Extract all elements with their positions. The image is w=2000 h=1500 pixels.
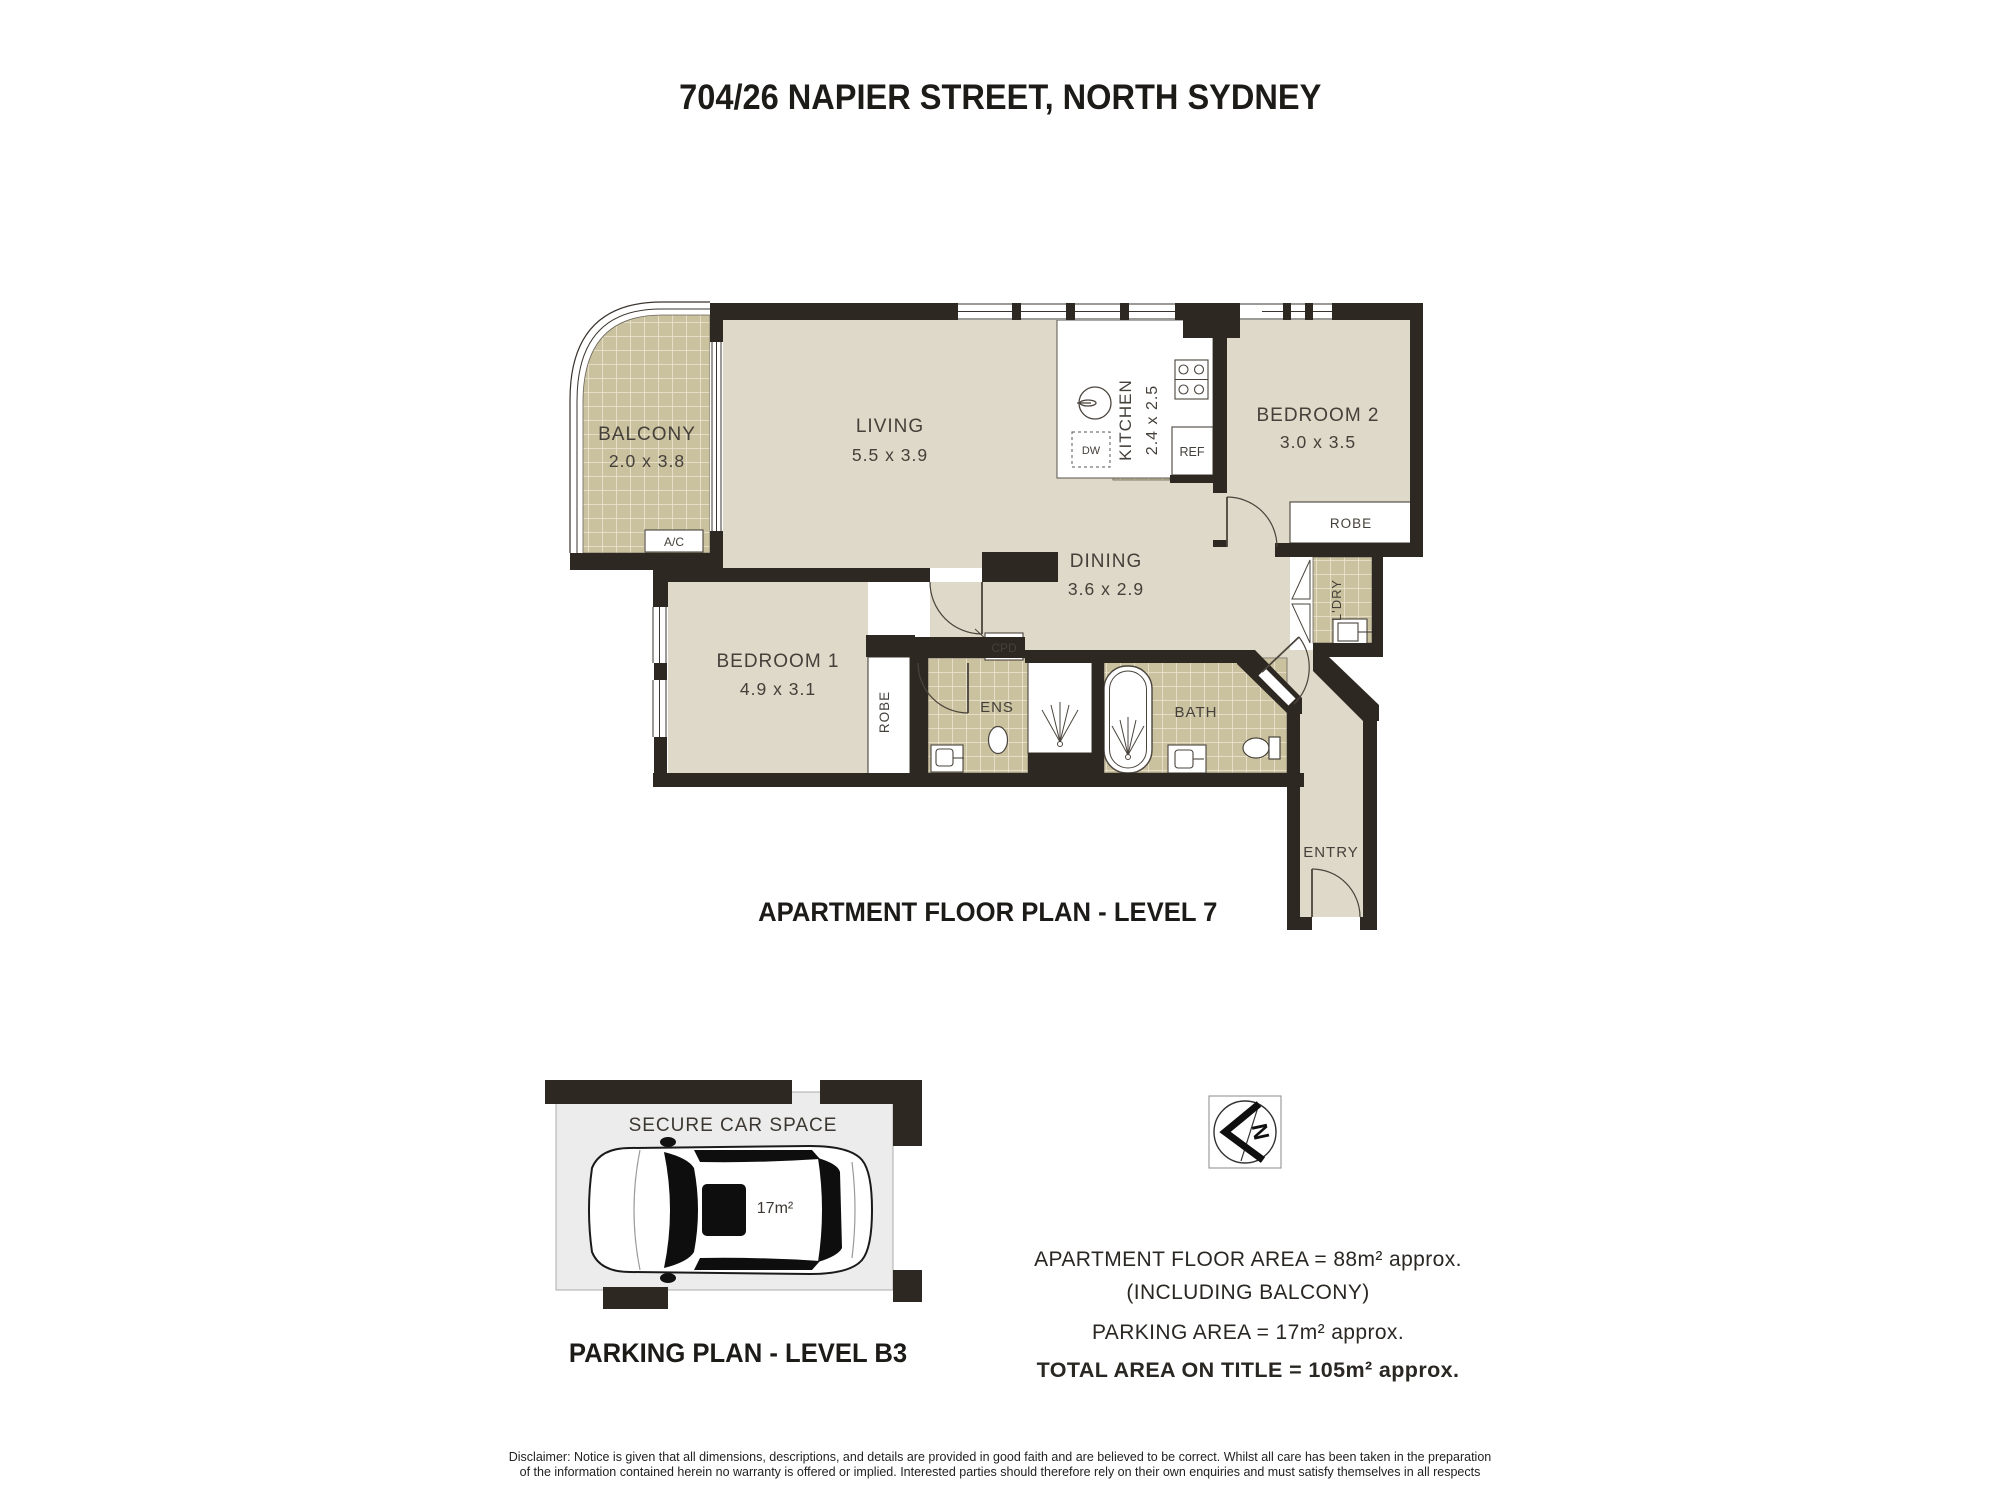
flyer-page: 704/26 NAPIER STREET, NORTH SYDNEY: [0, 0, 2000, 1500]
apartment-area-note: (INCLUDING BALCONY): [1028, 1281, 1468, 1305]
parking-plan: SECURE CAR SPACE 17m²: [520, 1060, 950, 1330]
bath-toilet: [1243, 737, 1280, 759]
area-summary: APARTMENT FLOOR AREA = 88m² approx. (INC…: [1028, 1248, 1468, 1392]
bedroom2-dims: 3.0 x 3.5: [1280, 432, 1356, 452]
balcony-slider: [710, 342, 723, 531]
north-compass-icon: N: [1205, 1092, 1289, 1176]
bedroom1-dims: 4.9 x 3.1: [740, 679, 816, 699]
cupboard-label: CPD: [991, 641, 1017, 655]
bath-vanity: [1168, 745, 1206, 773]
dining-dims: 3.6 x 2.9: [1068, 579, 1144, 599]
total-area-line: TOTAL AREA ON TITLE = 105m² approx.: [1028, 1358, 1468, 1383]
balcony-label: BALCONY: [598, 424, 696, 445]
kitchen-label: KITCHEN: [1116, 379, 1135, 461]
disclaimer: Disclaimer: Notice is given that all dim…: [300, 1450, 1700, 1480]
bathtub-icon: [1104, 666, 1152, 773]
floor-plan-caption: APARTMENT FLOOR PLAN - LEVEL 7: [588, 897, 1388, 928]
stove-icon: [1175, 360, 1208, 399]
laundry-label: L'DRY: [1329, 579, 1344, 621]
balcony-dims: 2.0 x 3.8: [609, 451, 685, 471]
living-dims: 5.5 x 3.9: [852, 445, 928, 465]
disclaimer-line2: of the information contained herein no w…: [300, 1465, 1700, 1480]
robe2-label: ROBE: [1330, 516, 1372, 531]
living-label: LIVING: [856, 416, 924, 437]
car-space-area-label: 17m²: [757, 1200, 794, 1217]
parking-plan-caption: PARKING PLAN - LEVEL B3: [538, 1338, 938, 1369]
ac-label: A/C: [664, 535, 684, 549]
secure-car-space-label: SECURE CAR SPACE: [629, 1115, 838, 1136]
bedroom1-label: BEDROOM 1: [716, 651, 839, 672]
apartment-area-line: APARTMENT FLOOR AREA = 88m² approx.: [1028, 1248, 1468, 1272]
disclaimer-line1: Disclaimer: Notice is given that all dim…: [300, 1450, 1700, 1465]
refrigerator-label: REF: [1180, 445, 1205, 459]
bedroom2-label: BEDROOM 2: [1256, 405, 1379, 426]
ens-label: ENS: [980, 699, 1014, 716]
page-title: 704/26 NAPIER STREET, NORTH SYDNEY: [0, 78, 2000, 118]
parking-area-line: PARKING AREA = 17m² approx.: [1028, 1321, 1468, 1345]
ens-toilet: [989, 727, 1008, 754]
dining-label: DINING: [1070, 551, 1143, 572]
car-icon: 17m²: [589, 1137, 872, 1283]
apartment-floor-plan: BALCONY 2.0 x 3.8 LIVING 5.5 x 3.9 KITCH…: [540, 290, 1460, 950]
ens-vanity: [931, 745, 964, 772]
robe1-label: ROBE: [877, 691, 892, 733]
entry-label: ENTRY: [1303, 844, 1359, 861]
bath-label: BATH: [1175, 704, 1218, 721]
kitchen-dims: 2.4 x 2.5: [1144, 385, 1161, 455]
dishwasher-label: DW: [1082, 445, 1101, 457]
